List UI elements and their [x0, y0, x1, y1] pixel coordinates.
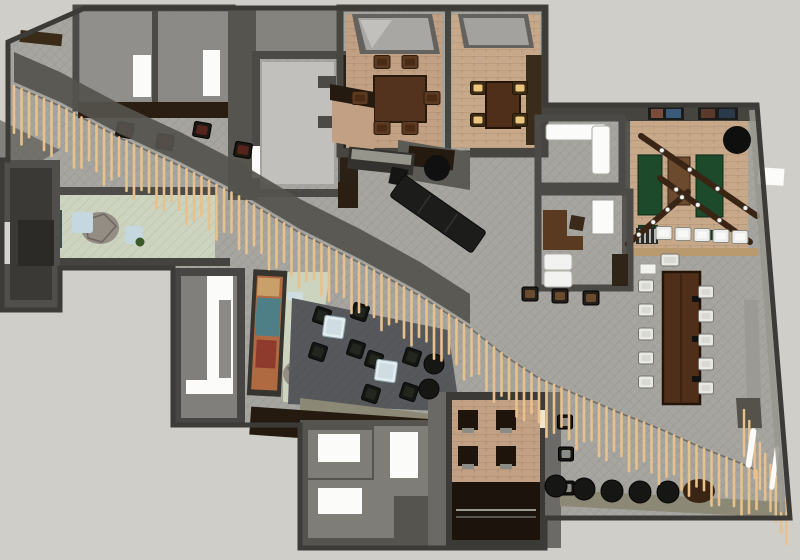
mural-wall [247, 269, 288, 397]
pouf [545, 475, 567, 497]
conference-chair-cushion [702, 361, 711, 367]
glass-door-panel [203, 50, 220, 96]
timber-threshold [632, 248, 758, 256]
roof-band [256, 8, 342, 55]
skylight-glass [463, 18, 529, 45]
pillar [428, 392, 446, 546]
pouf [419, 379, 439, 399]
empty-room [252, 8, 342, 193]
cushion-chair-cushion [516, 117, 525, 124]
beam-light [636, 232, 641, 237]
counter-stool-cushion [716, 233, 726, 240]
floorplan-render [0, 0, 800, 560]
counter-stool-cushion [678, 231, 688, 238]
conference-chair-cushion [702, 385, 711, 391]
side-chair-cushion [562, 450, 571, 458]
beam-light [687, 167, 692, 172]
framed-artwork-1 [648, 107, 684, 120]
conference-chair-cushion [642, 307, 651, 313]
dining-chair-cushion [405, 125, 415, 132]
mural-art-sand [257, 278, 280, 297]
white-sofa-return [592, 126, 610, 174]
pouf [601, 480, 623, 502]
counter-stool-cushion [697, 232, 707, 239]
mural-art-red [255, 340, 276, 369]
conference-chair-cushion [702, 313, 711, 319]
cushion-chair-cushion [474, 85, 483, 92]
conference-chair-cushion [642, 331, 651, 337]
round-stool [424, 155, 450, 181]
cushion-chair-cushion [474, 117, 483, 124]
dining1-table [374, 76, 426, 122]
green-table [638, 155, 662, 215]
focus-cubicles [300, 420, 432, 546]
black-drum [723, 126, 751, 154]
lounge-side-table-cushion [326, 319, 343, 336]
office-desk-return [543, 236, 583, 250]
brick-snug [428, 392, 561, 548]
pouf [573, 478, 595, 500]
wood-box [338, 182, 358, 208]
beam-light [743, 206, 748, 211]
mural-art-teal [255, 297, 281, 336]
conference-chair-cushion [702, 289, 711, 295]
cable-hub [692, 376, 701, 382]
daybed-cushion [544, 254, 572, 270]
counter-stool-cushion [659, 230, 669, 237]
stool-cushion [525, 290, 535, 298]
beam-light [680, 195, 685, 200]
cube-seat [72, 212, 93, 233]
beam-light [717, 218, 722, 223]
beam-light [715, 186, 720, 191]
office-cabinet [612, 254, 628, 286]
pouf [657, 481, 679, 503]
beam-light [659, 148, 664, 153]
stool-cushion [586, 294, 596, 302]
lightbox-room [173, 268, 245, 426]
light-feature-foot [186, 380, 233, 394]
floorplan-canvas [0, 0, 800, 560]
dining-chair-cushion [405, 59, 415, 66]
conference-chair-cushion [642, 283, 651, 289]
conference-chair-cushion [642, 355, 651, 361]
daybed-cushion [544, 271, 572, 287]
framed-artwork-2 [698, 107, 738, 120]
cubicle-desk-panel [318, 434, 360, 462]
conference-head-chair-cushion [664, 257, 676, 263]
beam-light [651, 220, 656, 225]
cubicle-desk-panel [318, 488, 362, 514]
conference-chair-cushion [642, 379, 651, 385]
light-feature-notch [219, 300, 231, 378]
conference-chair-cushion [702, 337, 711, 343]
dining-chair-cushion [427, 95, 437, 102]
counter-stool-cushion [735, 234, 745, 241]
cubicle-desk-panel [390, 432, 418, 478]
beam-light [695, 202, 700, 207]
vestibule [2, 160, 60, 308]
bar-stool-cushion [196, 125, 208, 136]
dining-chair-cushion [355, 95, 365, 102]
beam-light [665, 207, 670, 212]
stool-cushion [555, 292, 565, 300]
door-opening [18, 220, 54, 266]
beam-light [674, 187, 679, 192]
credenza [640, 264, 656, 274]
cushion-chair-cushion [516, 85, 525, 92]
office-chair [569, 215, 585, 231]
plant [136, 238, 145, 247]
whiteboard [592, 200, 614, 234]
dining-room-2 [452, 14, 542, 148]
bar-stool-cushion [237, 145, 249, 156]
pouf [629, 481, 651, 503]
dining-chair-cushion [377, 59, 387, 66]
dining-chair-cushion [377, 125, 387, 132]
glass-door-panel [133, 55, 151, 97]
lounge-side-table-cushion [378, 363, 395, 380]
